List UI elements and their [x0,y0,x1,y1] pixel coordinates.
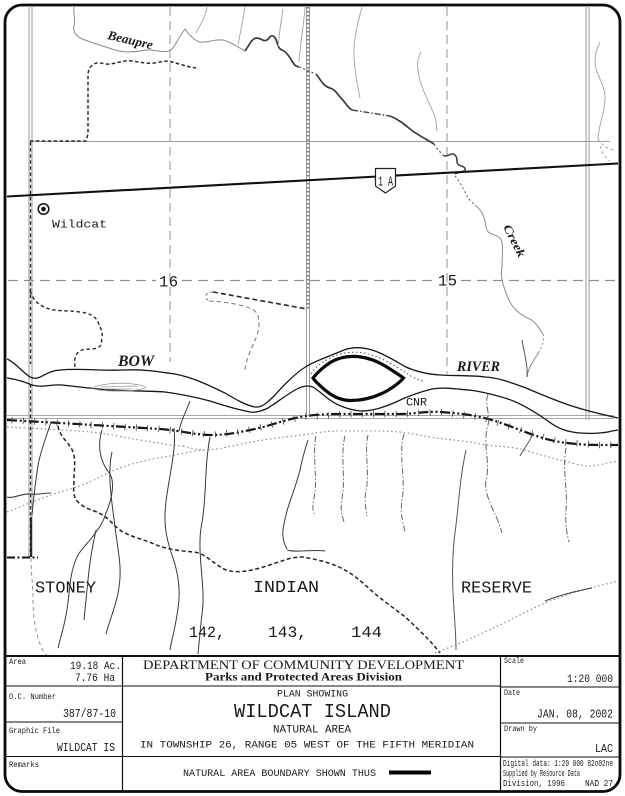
svg-text:Remarks: Remarks [9,761,39,770]
svg-text:7.76 Ha: 7.76 Ha [75,673,115,685]
svg-text:16: 16 [159,274,178,292]
svg-text:NAD 27: NAD 27 [585,779,613,789]
svg-text:NATURAL AREA BOUNDARY SHOWN TH: NATURAL AREA BOUNDARY SHOWN THUS [183,769,376,780]
svg-text:O.C. Number: O.C. Number [9,693,56,702]
svg-text:INDIAN: INDIAN [253,579,319,598]
svg-text:1:20 000: 1:20 000 [567,674,613,686]
svg-text:STONEY: STONEY [35,580,96,599]
svg-text:WILDCAT IS: WILDCAT IS [57,742,115,755]
svg-text:Supplied by Resource Data: Supplied by Resource Data [503,769,580,779]
svg-text:LAC: LAC [595,743,613,756]
svg-text:Area: Area [9,658,26,667]
svg-text:RIVER: RIVER [456,359,500,375]
svg-text:Graphic File: Graphic File [9,727,60,736]
svg-text:WILDCAT ISLAND: WILDCAT ISLAND [234,701,391,723]
svg-text:142,: 142, [189,624,225,642]
svg-text:Digital data: 1:20 000 82o02n: Digital data: 1:20 000 82o02ne [503,759,613,769]
svg-text:15: 15 [438,273,457,291]
svg-text:Division, 1996: Division, 1996 [503,779,565,789]
svg-text:Date: Date [504,689,520,698]
svg-text:Wildcat: Wildcat [52,220,107,232]
svg-text:PLAN SHOWING: PLAN SHOWING [277,690,348,701]
svg-text:Scale: Scale [504,657,524,666]
svg-text:RESERVE: RESERVE [461,580,532,599]
svg-text:NATURAL AREA: NATURAL AREA [273,725,351,737]
svg-text:CNR: CNR [406,398,427,410]
svg-text:JAN. 08, 2002: JAN. 08, 2002 [537,709,613,722]
svg-text:387/87-10: 387/87-10 [63,707,116,721]
svg-text:19.18 Ac.: 19.18 Ac. [70,661,121,673]
svg-text:1 A: 1 A [378,175,393,191]
svg-text:144: 144 [351,624,382,642]
svg-text:BOW: BOW [117,353,156,370]
svg-text:Drawn by: Drawn by [504,725,537,734]
svg-text:IN TOWNSHIP 26, RANGE 05 WES: IN TOWNSHIP 26, RANGE 05 WEST OF THE FIF… [140,740,474,752]
svg-text:Parks and Protected Areas Divi: Parks and Protected Areas Division [205,670,402,684]
svg-text:143,: 143, [268,624,307,642]
